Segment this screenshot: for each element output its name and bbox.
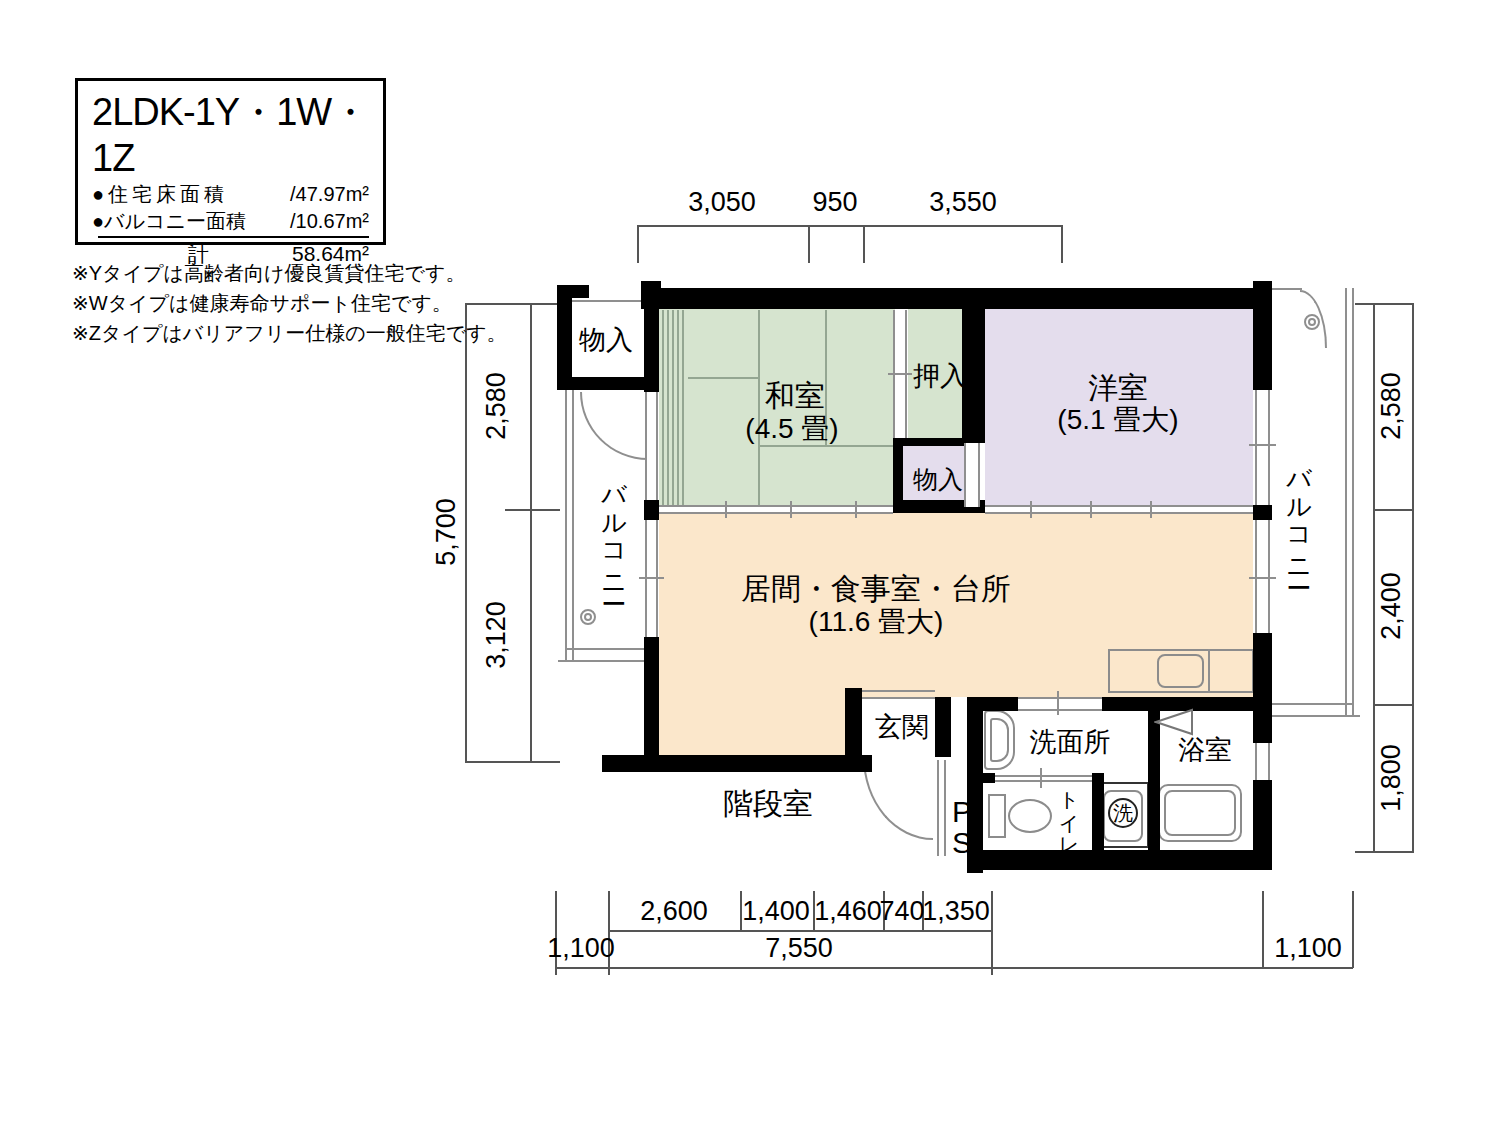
room-label-genkan: 玄関 — [875, 709, 929, 745]
kitchen-counter-divider — [1208, 649, 1210, 693]
dim-line — [530, 303, 532, 762]
floor-area-label: ●住宅床面積 — [92, 181, 228, 208]
toilet-tank-icon — [988, 794, 1006, 838]
floor-area-row: ●住宅床面積 /47.97m² — [92, 181, 369, 208]
drain-icon — [1308, 318, 1316, 326]
balcony-rail — [565, 388, 567, 662]
opening-tick — [639, 577, 664, 579]
tatami-line — [672, 310, 674, 505]
opening-tick — [1040, 768, 1042, 788]
laundry-icon: 洗 — [1108, 798, 1138, 828]
ps-pipe-line — [944, 760, 946, 856]
dim-tick — [808, 225, 810, 263]
dim-tick — [863, 225, 865, 263]
wall — [893, 438, 970, 446]
room-label-ps: PS — [949, 796, 975, 858]
tatami-line — [677, 310, 679, 505]
room-size-washitsu: (4.5 畳) — [745, 410, 838, 448]
wall — [967, 697, 1272, 711]
dim-bottom-left-balcony: 1,100 — [547, 933, 615, 964]
wall — [645, 288, 1272, 309]
legend-box: 2LDK-1Y・1W・1Z ●住宅床面積 /47.97m² ●バルコニー面積 /… — [75, 78, 386, 245]
balcony-edge — [565, 648, 647, 650]
balcony-area-value: /10.67m² — [290, 208, 369, 235]
room-size-ldk: (11.6 畳大) — [809, 603, 944, 641]
tatami-line — [667, 310, 669, 505]
wall — [644, 637, 659, 772]
dim-tick — [991, 891, 993, 975]
dim-right-3: 1,800 — [1376, 744, 1407, 812]
room-label-oshiire: 押入 — [913, 358, 967, 394]
sliding-door — [985, 505, 1253, 514]
room-label-balcony-left: バルコニー — [599, 466, 632, 595]
balcony-edge — [1272, 715, 1360, 717]
dim-tick — [1352, 891, 1354, 968]
floor-plan-canvas: 2LDK-1Y・1W・1Z ●住宅床面積 /47.97m² ●バルコニー面積 /… — [0, 0, 1500, 1127]
dim-tick — [637, 225, 639, 263]
entry-door-arc-icon — [863, 757, 933, 840]
dim-left-total: 5,700 — [431, 498, 462, 566]
dim-line — [637, 225, 1063, 227]
dim-bottom-right-balcony: 1,100 — [1274, 933, 1342, 964]
wall — [1092, 773, 1104, 850]
door-arc-icon — [580, 392, 648, 460]
dim-tick — [1061, 225, 1063, 263]
dim-tick — [465, 761, 560, 763]
entry-step-line — [862, 690, 935, 692]
dim-line — [465, 303, 467, 762]
ps-pipe-line — [937, 760, 939, 856]
window — [645, 392, 658, 500]
opening-tick — [1150, 501, 1152, 518]
dim-line — [1412, 303, 1414, 852]
dim-bottom-4: 740 — [879, 896, 924, 927]
opening-tick — [1249, 444, 1276, 446]
toilet-door-line — [995, 775, 1092, 777]
wall — [557, 285, 589, 298]
entry-step-line — [862, 697, 935, 699]
room-label-balcony-right: バルコニー — [1284, 450, 1317, 579]
note-y-type: ※Yタイプは高齢者向け優良賃貸住宅です。 — [72, 258, 507, 288]
wall — [983, 773, 995, 783]
balcony-rail — [1345, 288, 1347, 715]
room-label-senmenjo: 洗面所 — [1030, 724, 1111, 760]
opening-tick — [1057, 691, 1059, 715]
dim-bottom-total: 7,550 — [765, 933, 833, 964]
opening-tick — [1030, 501, 1032, 518]
window — [1255, 743, 1270, 780]
ldk-floor-lower — [659, 697, 845, 755]
dim-tick — [505, 509, 560, 511]
wall — [967, 850, 1272, 870]
opening-tick — [1249, 577, 1276, 579]
monoire-top-line — [572, 300, 644, 302]
dim-left-2: 3,120 — [481, 601, 512, 669]
bathtub-icon — [1164, 790, 1236, 836]
dim-line — [555, 967, 1353, 969]
room-label-yokushitsu: 浴室 — [1178, 732, 1232, 768]
balcony-edge — [1272, 703, 1354, 705]
room-label-monoire-top: 物入 — [579, 322, 633, 358]
drain-icon — [584, 613, 592, 621]
wall — [1253, 283, 1272, 390]
tatami-line — [682, 310, 684, 505]
washbasin-icon — [990, 718, 1009, 762]
tatami-line — [662, 310, 664, 505]
balcony-rail — [1352, 288, 1354, 715]
balcony-area-row: ●バルコニー面積 /10.67m² — [92, 208, 369, 235]
dim-bottom-3: 1,460 — [814, 896, 882, 927]
plan-title: 2LDK-1Y・1W・1Z — [92, 89, 369, 181]
dim-left-1: 2,580 — [481, 372, 512, 440]
dim-tick — [1373, 704, 1414, 706]
opening-tick — [725, 501, 727, 518]
room-label-monoire-mid: 物入 — [913, 463, 963, 496]
dim-bottom-5: 1,350 — [922, 896, 990, 927]
room-label-toilet: トイレ — [1057, 778, 1084, 846]
room-label-stairs: 階段室 — [723, 784, 813, 825]
dim-tick — [1355, 303, 1414, 305]
dim-tick — [1355, 851, 1414, 853]
toilet-bowl-icon — [1008, 799, 1052, 833]
opening-tick — [790, 501, 792, 518]
dim-top-3: 3,550 — [929, 187, 997, 218]
balcony-edge — [558, 660, 658, 662]
wall — [557, 377, 659, 390]
sliding-door — [659, 505, 893, 514]
sliding-door — [1018, 697, 1102, 711]
room-size-youshitsu: (5.1 畳大) — [1057, 401, 1178, 439]
dim-tick — [1373, 509, 1414, 511]
tatami-line — [758, 310, 760, 505]
wall — [935, 697, 951, 757]
floor-area-value: /47.97m² — [290, 181, 369, 208]
wall — [845, 755, 872, 772]
type-notes: ※Yタイプは高齢者向け優良賃貸住宅です。 ※Wタイプは健康寿命サポート住宅です。… — [72, 258, 507, 348]
tatami-line — [688, 377, 760, 379]
opening-tick — [1090, 501, 1092, 518]
kitchen-sink-icon — [1157, 654, 1204, 688]
sliding-door — [964, 443, 980, 507]
wall — [1253, 633, 1272, 743]
wall — [557, 285, 572, 390]
opening-tick — [855, 501, 857, 518]
wall — [1253, 505, 1272, 520]
legend-divider — [98, 236, 369, 238]
balcony-rail — [572, 388, 574, 662]
dim-right-2: 2,400 — [1376, 572, 1407, 640]
dim-top-1: 3,050 — [688, 187, 756, 218]
note-w-type: ※Wタイプは健康寿命サポート住宅です。 — [72, 288, 507, 318]
opening-tick — [888, 373, 912, 375]
dim-right-1: 2,580 — [1376, 372, 1407, 440]
room-label-laundry: 洗 — [1113, 800, 1133, 827]
wall — [602, 755, 848, 772]
dim-tick — [1262, 891, 1264, 968]
balcony-area-label: ●バルコニー面積 — [92, 208, 246, 235]
dim-top-2: 950 — [812, 187, 857, 218]
note-z-type: ※Zタイプはバリアフリー仕様の一般住宅です。 — [72, 318, 507, 348]
window — [1255, 390, 1270, 505]
wall — [644, 500, 659, 520]
dim-bottom-2: 1,400 — [742, 896, 810, 927]
dim-bottom-1: 2,600 — [640, 896, 708, 927]
balcony-edge — [1272, 288, 1302, 290]
